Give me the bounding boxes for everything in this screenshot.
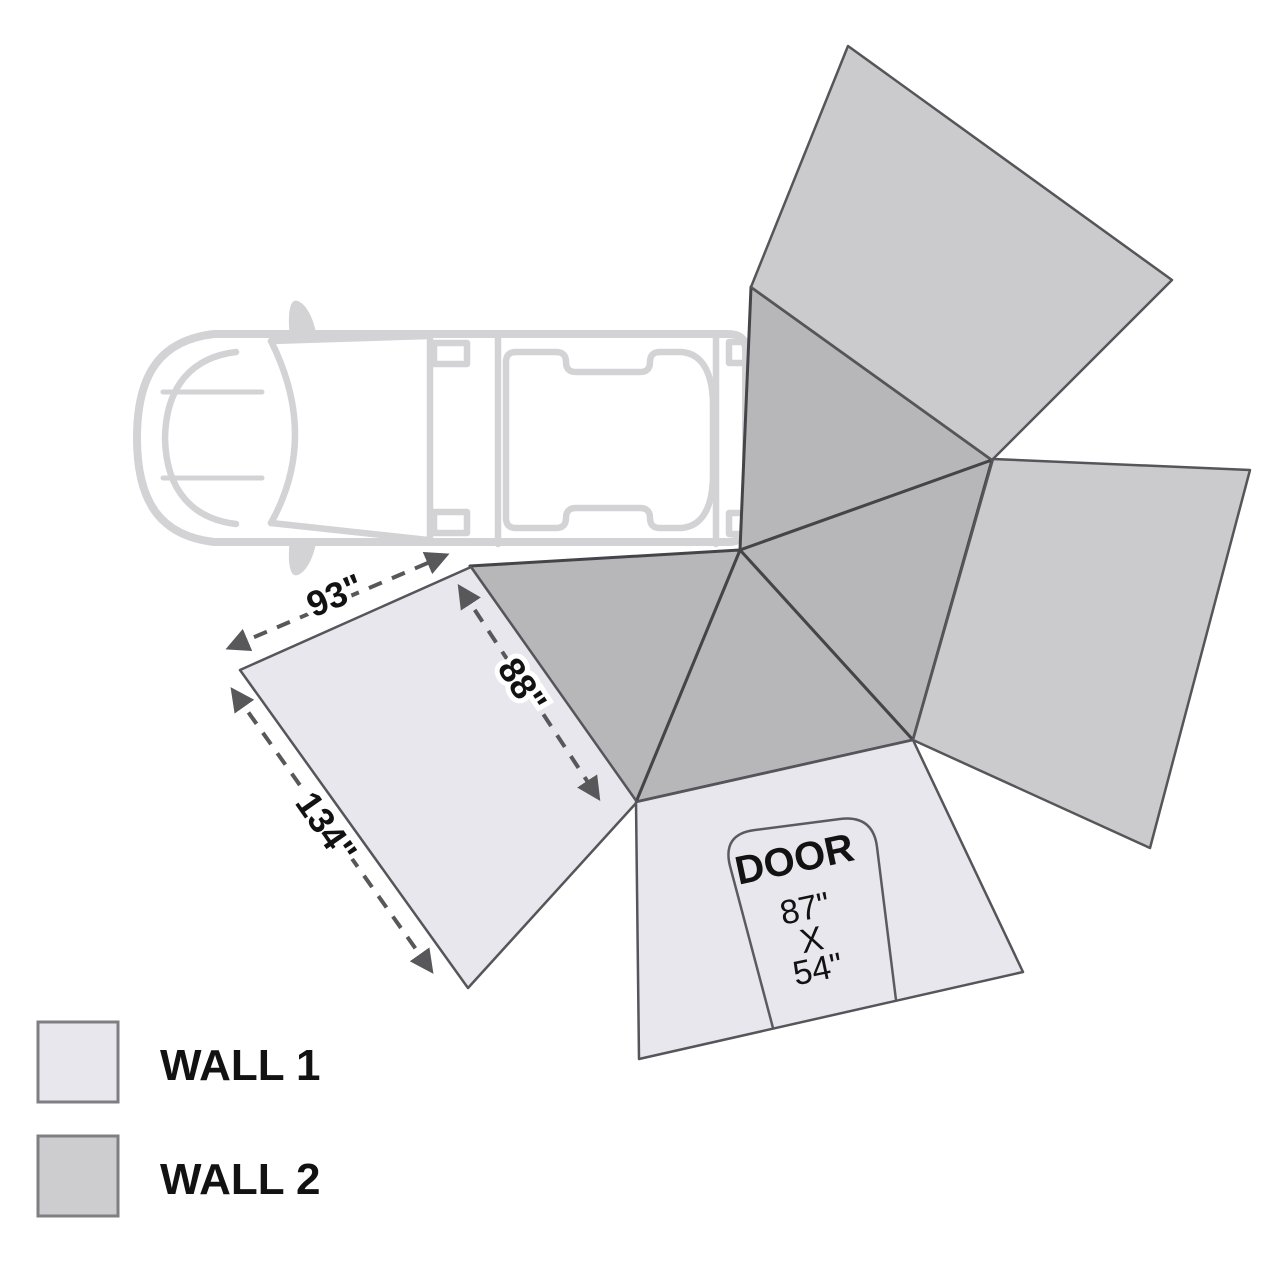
truck-topview-icon [137,301,751,576]
truck-cab-detail [434,343,467,364]
truck-cab-detail [434,512,467,533]
truck-front-inner-line [165,352,236,524]
truck-mirror-icon [289,538,317,575]
legend-label-wall2: WALL 2 [160,1155,321,1204]
wall1-door-panel [636,740,1023,1059]
truck-a-pillar [271,523,428,540]
legend: WALL 1 WALL 2 [38,1022,321,1216]
truck-bed-tub [506,352,713,528]
legend-swatch-wall2 [38,1136,118,1216]
truck-mirror-icon [289,301,317,338]
legend-swatch-wall1 [38,1022,118,1102]
truck-windshield-arc [271,341,295,523]
legend-label-wall1: WALL 1 [160,1041,321,1090]
diagram-canvas: DOOR 87" X 54" 93" 88" 134" WALL 1 WALL … [0,0,1280,1280]
awning-wall-diagram: DOOR 87" X 54" 93" 88" 134" WALL 1 WALL … [0,0,1280,1280]
